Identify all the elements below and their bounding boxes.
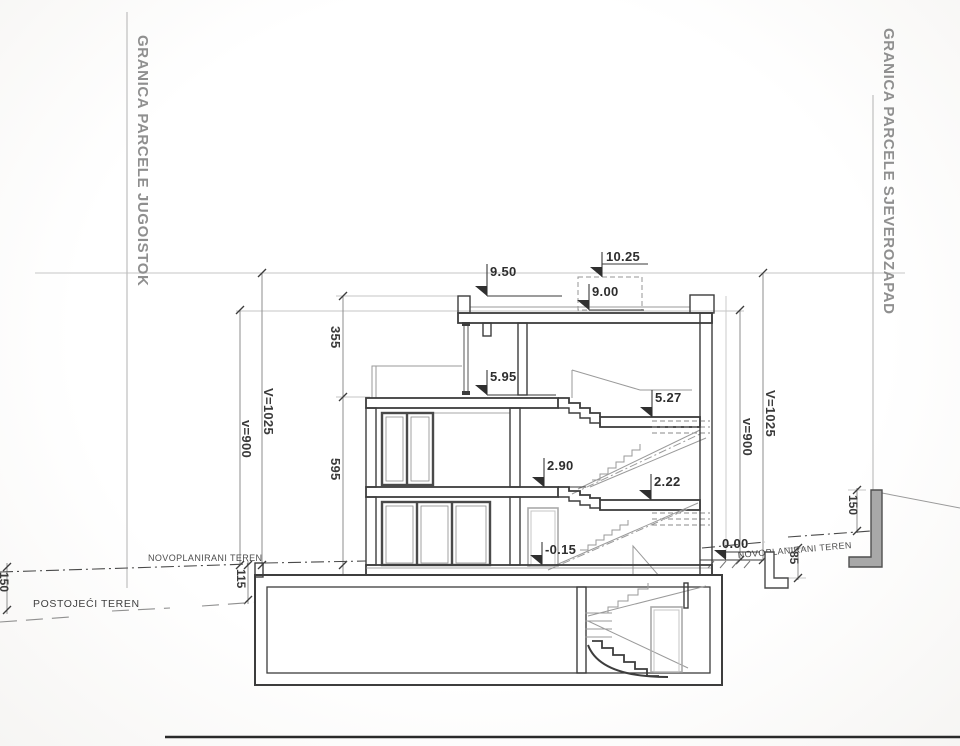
new-terrain-line-right2	[788, 531, 871, 537]
svg-text:2.90: 2.90	[547, 458, 574, 473]
existing-terrain-line-right	[882, 493, 960, 508]
new-terrain-label-left: NOVOPLANIRANI TEREN	[148, 553, 262, 563]
concrete-step	[765, 552, 788, 588]
svg-text:-0.15: -0.15	[545, 542, 576, 557]
parapet-right	[690, 295, 714, 313]
stair-railing	[572, 370, 640, 390]
interior-wall-1	[510, 497, 520, 565]
interior-wall-top	[518, 323, 527, 395]
dim-left-v900: v=900	[239, 420, 254, 458]
boundary-label-left: GRANICA PARCELE JUGOISTOK	[134, 35, 151, 286]
dimension-lines: 355 595 V=1025 v=900 V=1025 v=900 115 15…	[0, 269, 861, 614]
dim-right-V1025: V=1025	[763, 390, 778, 437]
marker-minus-0-15: -0.15	[530, 542, 622, 565]
window-elevation	[382, 413, 433, 485]
svg-text:0.00: 0.00	[722, 536, 749, 551]
marker-2-22: 2.22	[639, 474, 700, 500]
dim-150-left: 150	[0, 572, 11, 592]
marker-5-95: 5.95	[475, 369, 556, 395]
marker-5-27: 5.27	[640, 390, 700, 417]
svg-text:10.25: 10.25	[606, 249, 640, 264]
roof-beam	[483, 323, 491, 336]
dim-right-v900: v=900	[740, 418, 755, 456]
basement	[255, 563, 722, 685]
marker-9-00: 9.00	[577, 284, 644, 310]
elevation-markers: 10.25 9.50 9.00 5.95 5.27	[475, 249, 764, 565]
dim-150-right: 150	[846, 495, 860, 515]
exterior-wall-right	[700, 313, 712, 575]
dim-595: 595	[328, 458, 343, 481]
glass-door-elevation	[382, 502, 490, 565]
stair-flight-upper-elevation	[572, 430, 706, 494]
section-drawing-canvas: GRANICA PARCELE JUGOISTOK GRANICA PARCEL…	[0, 0, 960, 746]
interior-wall-2	[510, 408, 520, 487]
top-floor	[372, 322, 692, 398]
dim-115: 115	[234, 569, 248, 589]
marker-9-50: 9.50	[475, 264, 562, 296]
new-terrain-line-left2	[265, 561, 366, 563]
stair-flight-ground-elevation	[548, 503, 698, 577]
interior-door-elevation	[528, 508, 558, 566]
building-section	[255, 277, 882, 685]
site-right	[765, 490, 882, 588]
glazing-head	[462, 322, 470, 326]
dim-355: 355	[328, 326, 343, 349]
svg-text:5.27: 5.27	[655, 390, 682, 405]
svg-text:5.95: 5.95	[490, 369, 517, 384]
parapet-left	[458, 296, 470, 313]
parcel-boundaries: GRANICA PARCELE JUGOISTOK GRANICA PARCEL…	[127, 12, 897, 588]
architectural-section-drawing: GRANICA PARCELE JUGOISTOK GRANICA PARCEL…	[0, 0, 960, 746]
svg-text:9.50: 9.50	[490, 264, 517, 279]
svg-text:9.00: 9.00	[592, 284, 619, 299]
dim-left-V1025: V=1025	[261, 388, 276, 435]
marker-2-90: 2.90	[532, 458, 586, 487]
exterior-wall-left-2	[366, 408, 376, 487]
svg-text:2.22: 2.22	[654, 474, 681, 489]
new-terrain-line-left	[0, 564, 250, 572]
boundary-label-right: GRANICA PARCELE SJEVEROZAPAD	[880, 28, 897, 315]
glazing-sill	[462, 391, 470, 395]
hidden-edges-upper	[652, 421, 710, 433]
existing-terrain-label: POSTOJEĆI TEREN	[33, 597, 140, 610]
exterior-wall-left-1	[366, 497, 376, 565]
ground-hatch-marks	[708, 561, 750, 568]
